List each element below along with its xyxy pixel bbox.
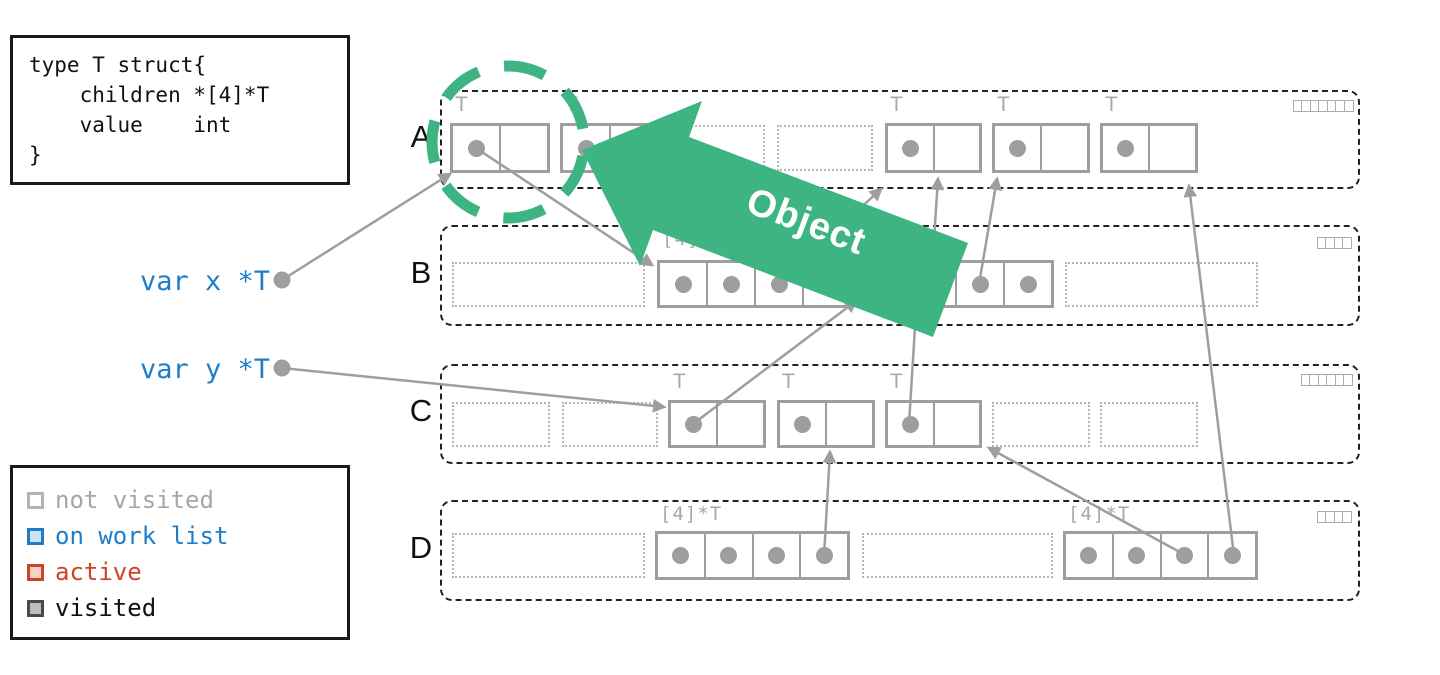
pointer-dot <box>902 416 919 433</box>
object-field-cell <box>888 126 933 170</box>
heap-object <box>560 123 660 173</box>
pointer-dot <box>819 276 836 293</box>
type-label: T <box>890 93 903 117</box>
legend-item-active: active <box>27 554 347 590</box>
object-field-cell <box>780 403 825 445</box>
array-type-label: [4]*T <box>662 228 724 250</box>
span-bitmap-icon <box>1318 511 1352 523</box>
variable-pointer-dot <box>274 272 291 289</box>
pointer-dot <box>794 416 811 433</box>
object-field-cell <box>955 263 1003 305</box>
object-field-cell <box>1148 126 1195 170</box>
object-field-cell <box>1207 534 1255 577</box>
pointer-dot <box>768 547 785 564</box>
type-definition-box: type T struct{ children *[4]*T value int… <box>10 35 350 185</box>
pointer-dot <box>1176 547 1193 564</box>
pointer-array-object <box>655 531 850 580</box>
legend-item-on-work-list: on work list <box>27 518 347 554</box>
row-label-c: C <box>401 393 441 429</box>
pointer-dot <box>685 416 702 433</box>
free-slot <box>452 533 645 578</box>
pointer-dot <box>902 140 919 157</box>
free-slot <box>452 262 645 307</box>
pointer-dot <box>578 140 595 157</box>
legend-label: active <box>55 558 142 586</box>
pointer-dot <box>1080 547 1097 564</box>
object-field-cell <box>907 263 955 305</box>
array-type-label: [4]*T <box>660 503 722 525</box>
object-field-cell <box>799 534 847 577</box>
span-bitmap-icon <box>1318 237 1352 249</box>
object-field-cell <box>1160 534 1208 577</box>
pointer-dot <box>1117 140 1134 157</box>
object-field-cell <box>888 403 933 445</box>
free-slot <box>1065 262 1258 307</box>
object-field-cell <box>754 263 802 305</box>
object-field-cell <box>1040 126 1087 170</box>
pointer-dot <box>723 276 740 293</box>
object-field-cell <box>861 263 907 305</box>
heap-object <box>668 400 766 448</box>
pointer-dot <box>1128 547 1145 564</box>
object-field-cell <box>658 534 704 577</box>
legend-label: not visited <box>55 486 214 514</box>
pointer-dot <box>771 276 788 293</box>
legend-box: not visitedon work listactivevisited <box>10 465 350 640</box>
free-slot <box>562 402 658 447</box>
code-line: type T struct{ <box>29 50 347 80</box>
free-slot <box>452 402 550 447</box>
object-field-cell <box>609 126 657 170</box>
type-label: T <box>997 93 1010 117</box>
object-field-cell <box>563 126 609 170</box>
legend-label: visited <box>55 594 156 622</box>
heap-object <box>992 123 1090 173</box>
object-field-cell <box>453 126 499 170</box>
legend-label: on work list <box>55 522 228 550</box>
span-bitmap-icon <box>1294 100 1354 112</box>
heap-object <box>1100 123 1198 173</box>
bitmap-cell <box>1342 511 1352 523</box>
pointer-dot <box>1224 547 1241 564</box>
array-type-label: [4]*T <box>863 228 925 250</box>
legend-swatch-icon <box>27 528 44 545</box>
row-label-d: D <box>401 530 441 566</box>
legend-item-visited: visited <box>27 590 347 626</box>
object-field-cell <box>933 403 980 445</box>
span-bitmap-icon <box>1302 374 1353 386</box>
free-slot <box>777 125 873 171</box>
type-label: T <box>890 370 903 394</box>
object-field-cell <box>671 403 716 445</box>
object-field-cell <box>704 534 752 577</box>
heap-object <box>450 123 550 173</box>
object-field-cell <box>716 403 763 445</box>
legend-swatch-icon <box>27 564 44 581</box>
type-label: T <box>565 93 578 117</box>
object-field-cell <box>1066 534 1112 577</box>
pointer-dot <box>972 276 989 293</box>
row-label-b: B <box>401 255 441 291</box>
pointer-dot <box>672 547 689 564</box>
row-label-a: A <box>401 119 441 155</box>
legend-swatch-icon <box>27 492 44 509</box>
object-field-cell <box>1003 263 1051 305</box>
pointer-dot <box>876 276 893 293</box>
pointer-array-object <box>858 260 1054 308</box>
array-type-label: [4]*T <box>1068 503 1130 525</box>
pointer-dot <box>720 547 737 564</box>
legend-swatch-icon <box>27 600 44 617</box>
type-label: T <box>455 93 468 117</box>
object-field-cell <box>802 263 850 305</box>
bitmap-cell <box>1343 374 1353 386</box>
object-field-cell <box>1103 126 1148 170</box>
free-slot <box>675 125 765 171</box>
code-line: value int <box>29 110 347 140</box>
object-field-cell <box>1112 534 1160 577</box>
object-field-cell <box>706 263 754 305</box>
pointer-dot <box>924 276 941 293</box>
gc-diagram-canvas: type T struct{ children *[4]*T value int… <box>0 0 1440 675</box>
object-field-cell <box>933 126 980 170</box>
legend-item-not-visited: not visited <box>27 482 347 518</box>
variable-y-label: var y *T <box>60 354 270 385</box>
bitmap-cell <box>1342 237 1352 249</box>
heap-object <box>885 123 982 173</box>
free-slot <box>1100 402 1198 447</box>
code-line: children *[4]*T <box>29 80 347 110</box>
pointer-dot <box>468 140 485 157</box>
code-line: } <box>29 140 347 170</box>
object-field-cell <box>825 403 872 445</box>
type-label: T <box>782 370 795 394</box>
pointer-dot <box>1020 276 1037 293</box>
pointer-dot <box>1009 140 1026 157</box>
pointer-array-object <box>1063 531 1258 580</box>
free-slot <box>992 402 1090 447</box>
variable-x-label: var x *T <box>60 266 270 297</box>
pointer-dot <box>816 547 833 564</box>
heap-object <box>777 400 875 448</box>
free-slot <box>862 533 1053 578</box>
bitmap-cell <box>1344 100 1354 112</box>
heap-object <box>885 400 982 448</box>
object-field-cell <box>752 534 800 577</box>
pointer-array-object <box>657 260 853 308</box>
pointer-arrows-group <box>274 148 1235 556</box>
variable-pointer-dot <box>274 360 291 377</box>
pointer-dot <box>675 276 692 293</box>
object-field-cell <box>660 263 706 305</box>
type-label: T <box>673 370 686 394</box>
type-label: T <box>1105 93 1118 117</box>
object-field-cell <box>499 126 547 170</box>
object-field-cell <box>995 126 1040 170</box>
